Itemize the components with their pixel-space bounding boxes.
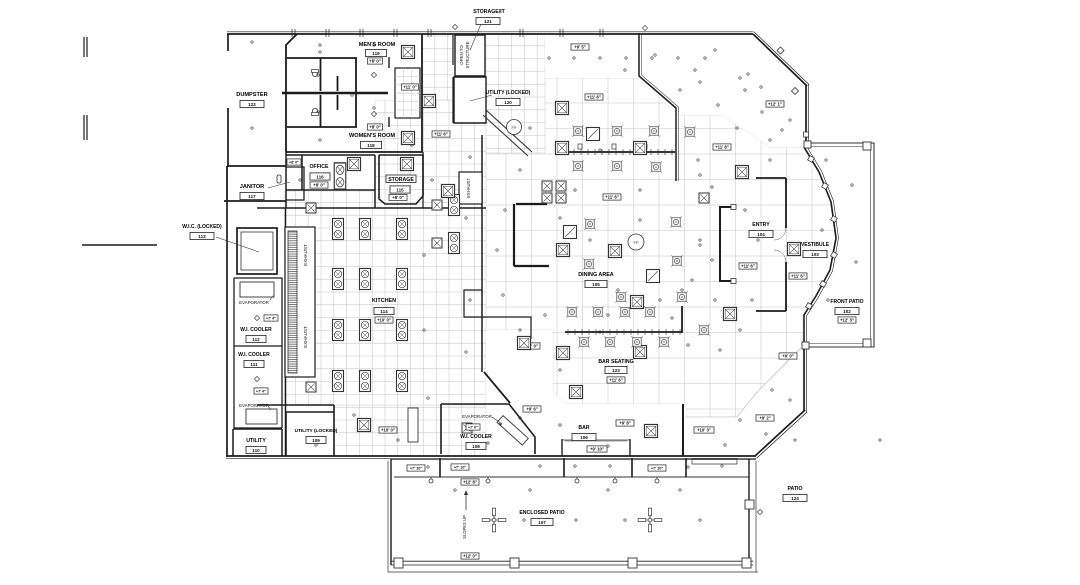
svg-text:+9′ 5″: +9′ 5″ — [574, 45, 586, 50]
svg-text:ENCLOSED PATIO: ENCLOSED PATIO — [519, 510, 564, 516]
svg-text:+9′ 6″: +9′ 6″ — [526, 407, 538, 412]
svg-text:MEN'S ROOM: MEN'S ROOM — [359, 42, 396, 48]
svg-text:110: 110 — [252, 448, 260, 453]
svg-text:+12′ 1″: +12′ 1″ — [768, 102, 782, 107]
svg-text:VESTIBULE: VESTIBULE — [801, 242, 830, 248]
svg-text:PATIO: PATIO — [787, 486, 802, 492]
svg-text:+9′ 2″: +9′ 2″ — [759, 416, 771, 421]
svg-text:EXHAUST: EXHAUST — [303, 244, 308, 266]
svg-text:STRUCTURE: STRUCTURE — [465, 41, 470, 68]
svg-text:103: 103 — [811, 252, 819, 257]
svg-text:119: 119 — [372, 51, 380, 56]
svg-text:DUMPSTER: DUMPSTER — [236, 92, 267, 98]
svg-text:114: 114 — [380, 309, 388, 314]
svg-text:+12′ 3″: +12′ 3″ — [840, 318, 854, 323]
svg-text:+8′ 0″: +8′ 0″ — [369, 125, 381, 130]
svg-text:FRONT PATIO: FRONT PATIO — [830, 299, 863, 305]
svg-text:+8′ 0″: +8′ 0″ — [392, 195, 404, 200]
svg-text:+8′ 0″: +8′ 0″ — [289, 161, 299, 165]
svg-text:EVAPORATOR: EVAPORATOR — [239, 300, 269, 305]
svg-text:+9′ 0″: +9′ 0″ — [782, 354, 794, 359]
svg-text:W.I.C. (LOCKED): W.I.C. (LOCKED) — [182, 224, 222, 230]
svg-text:123: 123 — [612, 368, 620, 373]
svg-text:WOMEN'S ROOM: WOMEN'S ROOM — [349, 133, 395, 139]
svg-text:UTILITY: UTILITY — [246, 438, 266, 444]
svg-text:STORAGE: STORAGE — [388, 177, 414, 183]
svg-text:105: 105 — [592, 282, 600, 287]
svg-text:108: 108 — [472, 444, 480, 449]
svg-text:121: 121 — [484, 19, 492, 24]
svg-text:ENTRY: ENTRY — [752, 222, 770, 228]
svg-text:FP: FP — [511, 125, 516, 130]
svg-text:UTILITY (LOCKED): UTILITY (LOCKED) — [295, 428, 338, 434]
svg-text:115: 115 — [396, 187, 404, 192]
svg-text:106: 106 — [580, 435, 588, 440]
svg-text:104: 104 — [757, 232, 765, 237]
svg-text:+12′ 0″: +12′ 0″ — [463, 554, 477, 559]
svg-text:+9′ 10″: +9′ 10″ — [590, 447, 604, 452]
svg-text:+10′ 3″: +10′ 3″ — [697, 428, 711, 433]
svg-text:EXHAUST: EXHAUST — [466, 178, 471, 198]
svg-text:+9′ 8″: +9′ 8″ — [619, 421, 631, 426]
svg-text:+7′ 10″: +7′ 10″ — [410, 467, 423, 471]
svg-text:112: 112 — [252, 337, 260, 342]
svg-text:107: 107 — [538, 520, 546, 525]
svg-text:+7′ 0″: +7′ 0″ — [468, 426, 478, 430]
svg-text:+7′ 10″: +7′ 10″ — [454, 466, 467, 470]
svg-text:EVAPORATOR: EVAPORATOR — [239, 403, 269, 408]
svg-text:124: 124 — [791, 496, 799, 501]
svg-text:BAR: BAR — [578, 425, 589, 431]
svg-text:111: 111 — [250, 362, 258, 367]
svg-text:DINING AREA: DINING AREA — [578, 272, 614, 278]
svg-text:+7′ 4″: +7′ 4″ — [256, 390, 266, 394]
svg-text:BAR SEATING: BAR SEATING — [598, 359, 633, 365]
svg-text:W.I. COOLER: W.I. COOLER — [238, 352, 270, 358]
svg-text:EXHAUST: EXHAUST — [303, 326, 308, 348]
svg-text:102: 102 — [843, 309, 851, 314]
svg-text:W.I. COOLER: W.I. COOLER — [240, 327, 272, 333]
svg-text:+8′ 0″: +8′ 0″ — [313, 183, 325, 188]
svg-text:+11′ 0″: +11′ 0″ — [403, 85, 417, 90]
svg-text:SLOPES UP: SLOPES UP — [462, 515, 467, 539]
svg-text:+11′ 8″: +11′ 8″ — [715, 145, 729, 150]
svg-text:109: 109 — [312, 438, 320, 443]
svg-text:+10′ 0″: +10′ 0″ — [377, 318, 391, 323]
svg-text:+8′ 0″: +8′ 0″ — [369, 59, 381, 64]
svg-text:+11′ 6″: +11′ 6″ — [587, 95, 601, 100]
svg-text:+11′ 6″: +11′ 6″ — [791, 274, 805, 279]
svg-text:+11′ 6″: +11′ 6″ — [741, 264, 755, 269]
svg-text:UTILITY (LOCKED): UTILITY (LOCKED) — [486, 90, 531, 96]
svg-text:JANITOR: JANITOR — [240, 184, 264, 190]
svg-text:+10′ 0″: +10′ 0″ — [381, 428, 395, 433]
svg-text:+11′ 6″: +11′ 6″ — [434, 132, 448, 137]
svg-text:+12′ 8″: +12′ 8″ — [463, 480, 477, 485]
svg-text:EVAPORATOR: EVAPORATOR — [462, 414, 492, 419]
svg-text:KITCHEN: KITCHEN — [372, 298, 396, 304]
svg-text:117: 117 — [248, 194, 256, 199]
svg-text:122: 122 — [248, 102, 256, 107]
svg-text:118: 118 — [367, 143, 375, 148]
svg-text:STORAGE/IT: STORAGE/IT — [473, 9, 505, 15]
svg-text:120: 120 — [504, 100, 512, 105]
svg-text:113: 113 — [198, 234, 206, 239]
svg-text:OFFICE: OFFICE — [309, 164, 329, 170]
svg-text:116: 116 — [316, 174, 324, 179]
svg-text:OPEN TO: OPEN TO — [459, 45, 464, 65]
svg-text:+11′ 6″: +11′ 6″ — [605, 195, 619, 200]
svg-text:+7′ 4″: +7′ 4″ — [266, 317, 276, 321]
svg-text:FP: FP — [633, 240, 638, 245]
svg-text:W.I. COOLER: W.I. COOLER — [460, 434, 492, 440]
svg-text:+7′ 10″: +7′ 10″ — [651, 467, 664, 471]
svg-text:+11′ 6″: +11′ 6″ — [609, 378, 623, 383]
